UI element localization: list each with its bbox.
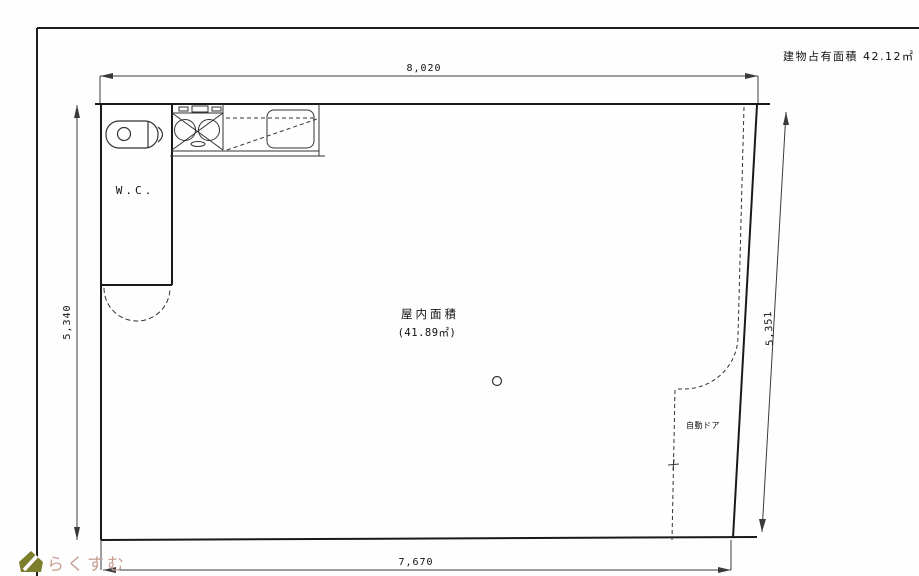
floorplan-drawing: 建物占有面積 42.12㎡ 8,020 7,670 (0, 0, 919, 576)
wc-room: W.C. (101, 104, 172, 321)
auto-door-label: 自動ドア (686, 420, 720, 430)
wc-label: W.C. (116, 184, 155, 197)
drawing-frame (37, 28, 919, 576)
wc-door-swing-arc (104, 288, 170, 321)
watermark-text: らくすむ (47, 555, 127, 575)
dimension-bottom: 7,670 (101, 540, 731, 573)
rakusumu-logo: らくすむ (19, 551, 127, 575)
toilet-icon (106, 121, 163, 148)
house-icon (19, 551, 43, 572)
dimension-top: 8,020 (100, 63, 758, 104)
building-area-note: 建物占有面積 42.12㎡ (783, 49, 915, 63)
indoor-area-value: (41.89㎡) (398, 327, 457, 339)
indoor-area-label: 屋内面積 (401, 307, 459, 321)
indoor-area-label-group: 屋内面積 (41.89㎡) (398, 307, 459, 339)
sink-drain-icon (191, 142, 205, 147)
dimension-right: 5,351 (759, 112, 789, 532)
dimension-top-label: 8,020 (406, 63, 441, 74)
auto-door-area: 自動ドア (668, 107, 744, 540)
dimension-left-label: 5,340 (62, 304, 73, 339)
dimension-bottom-label: 7,670 (398, 557, 433, 568)
dimension-left: 5,340 (62, 105, 80, 540)
room-walls (95, 104, 770, 540)
column-marker-circle (493, 377, 502, 386)
door-tick-cross (668, 459, 679, 470)
floorplan-image: 建物占有面積 42.12㎡ 8,020 7,670 (0, 0, 919, 576)
kitchen-counter (170, 104, 325, 156)
stove-burners-icon (175, 120, 220, 141)
dimension-right-label: 5,351 (763, 310, 776, 346)
sink-icon (267, 110, 314, 148)
